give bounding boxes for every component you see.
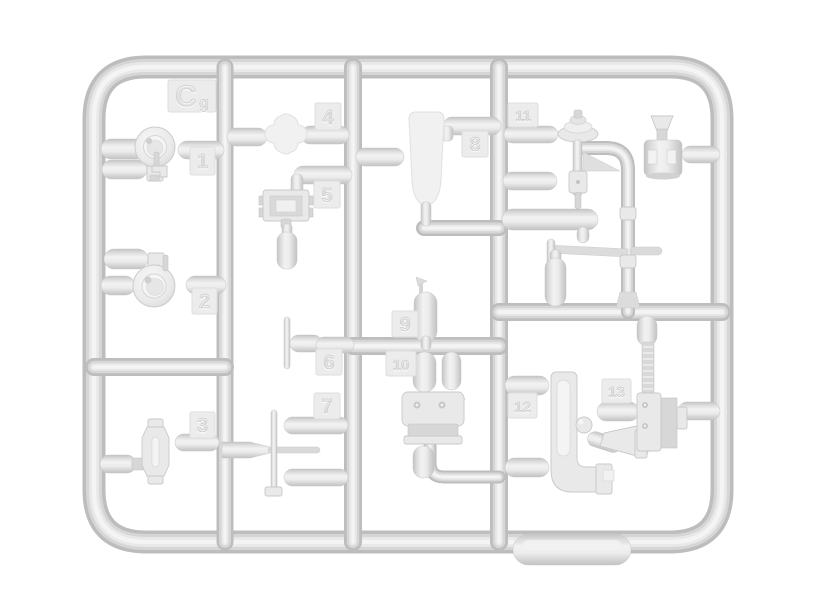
svg-text:1: 1 [197,151,208,173]
part-label-tile-2: 2 [192,288,217,314]
part-6-crossbar [284,317,290,369]
part-label-tile-7: 7 [314,393,340,419]
sprue-gate-tab [513,534,631,565]
svg-text:6: 6 [323,352,334,374]
svg-text:13: 13 [608,384,625,401]
part-label-tile-6: 6 [316,349,342,375]
part-label-tile-12: 12 [508,393,537,418]
svg-text:10: 10 [393,357,410,374]
part-13-bracket [637,393,661,451]
part-8-paddle [409,112,444,206]
runner-elbow-part10 [430,446,499,477]
part-11-bottle [545,258,566,306]
sprue-id-letter: C [175,80,197,113]
part-4-cap [265,114,307,154]
part-7-body [222,442,270,458]
part-11-assembly-group [502,110,720,308]
part-label-tile-8: 8 [462,131,488,157]
svg-text:4: 4 [322,107,334,129]
part-label-tile-10: 10 [386,351,416,376]
svg-text:11: 11 [515,108,531,125]
svg-text:12: 12 [514,399,531,416]
part-8-paddle-group [356,112,501,226]
svg-text:8: 8 [469,134,480,156]
part-label-tile-13: 13 [602,379,631,403]
part-10-bracket [402,392,464,426]
part-label-tile-4: 4 [315,103,341,130]
sprue-svg: C g 1 2 3 4 5 6 7 8 9 10 11 [0,0,820,615]
svg-text:5: 5 [321,185,332,207]
part-13-spring [642,342,654,396]
sprue-id-subletter: g [199,95,209,112]
part-label-tile-11: 11 [508,103,538,127]
sprue-photo: C g 1 2 3 4 5 6 7 8 9 10 11 [0,0,820,615]
part-label-tile-5: 5 [314,181,340,208]
part-label-tile-9: 9 [392,311,418,337]
part-7-shaft [271,410,277,492]
part-label-tile-3: 3 [190,412,215,438]
svg-text:2: 2 [199,291,210,313]
sprue-id-tag: C g [168,80,216,113]
part-label-tile-1: 1 [190,147,215,175]
svg-text:3: 3 [197,415,208,437]
svg-text:7: 7 [321,396,332,418]
part-5-bottle [277,232,297,269]
svg-text:9: 9 [399,314,410,336]
part-7-wrench-group [222,410,348,496]
